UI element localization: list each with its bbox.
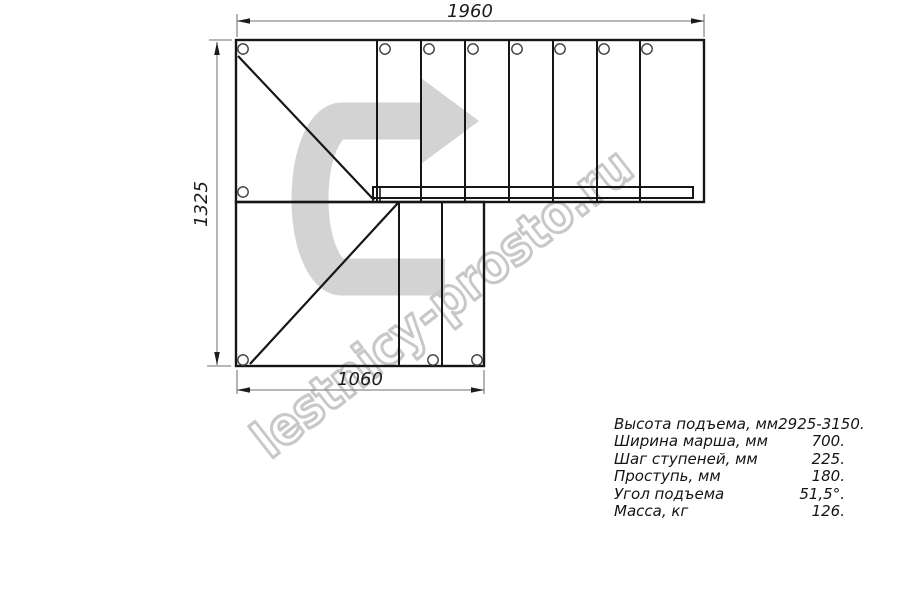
spec-value: 180. [812,468,845,485]
spec-label: Шаг ступеней, мм [614,451,758,468]
screw-hole-icon [512,44,522,54]
screw-hole-icon [238,187,248,197]
screw-hole-icon [599,44,609,54]
screw-hole-icon [424,44,434,54]
screw-hole-icon [468,44,478,54]
screw-hole-icon [428,355,438,365]
spec-value: 51,5°. [799,486,845,503]
direction-arrow-head [421,78,479,164]
dimension-bottom-width: 1060 [237,369,484,394]
spec-label: Угол подъема [614,486,724,503]
dimension-arrow-icon [214,42,220,55]
dimension-top-width: 1960 [237,1,704,37]
screw-hole-icon [555,44,565,54]
spec-row-angle: Угол подъема 51,5°. [614,486,845,503]
screw-hole-icon [472,355,482,365]
screw-hole-icon [642,44,652,54]
dimension-bottom-label: 1060 [337,369,383,390]
dimension-arrow-icon [691,18,704,24]
spec-row-march-width: Ширина марша, мм 700. [614,433,845,450]
dimension-left-height: 1325 [191,40,232,366]
spec-value: 2925-3150. [778,416,865,433]
spec-label: Высота подъема, мм [614,416,778,433]
screw-hole-icon [238,355,248,365]
dimension-arrow-icon [237,18,250,24]
dimension-left-label: 1325 [191,181,212,227]
spec-row-step-pitch: Шаг ступеней, мм 225. [614,451,845,468]
screw-hole-icon [238,44,248,54]
spec-label: Проступь, мм [614,468,721,485]
stair-drawing-canvas: lestnicy-prosto.ru [0,0,900,600]
dimension-arrow-icon [237,387,250,393]
spec-value: 225. [812,451,845,468]
spec-label: Ширина марша, мм [614,433,768,450]
dimension-top-label: 1960 [447,1,493,22]
spec-table: Высота подъема, мм 2925-3150. Ширина мар… [614,416,845,520]
spec-value: 126. [812,503,845,520]
spec-row-tread: Проступь, мм 180. [614,468,845,485]
spec-row-height: Высота подъема, мм 2925-3150. [614,416,845,433]
dimension-arrow-icon [214,352,220,365]
spec-label: Масса, кг [614,503,688,520]
spec-value: 700. [812,433,845,450]
screw-hole-icon [380,44,390,54]
spec-row-mass: Масса, кг 126. [614,503,845,520]
direction-arrow-icon [310,78,479,277]
dimension-arrow-icon [471,387,484,393]
